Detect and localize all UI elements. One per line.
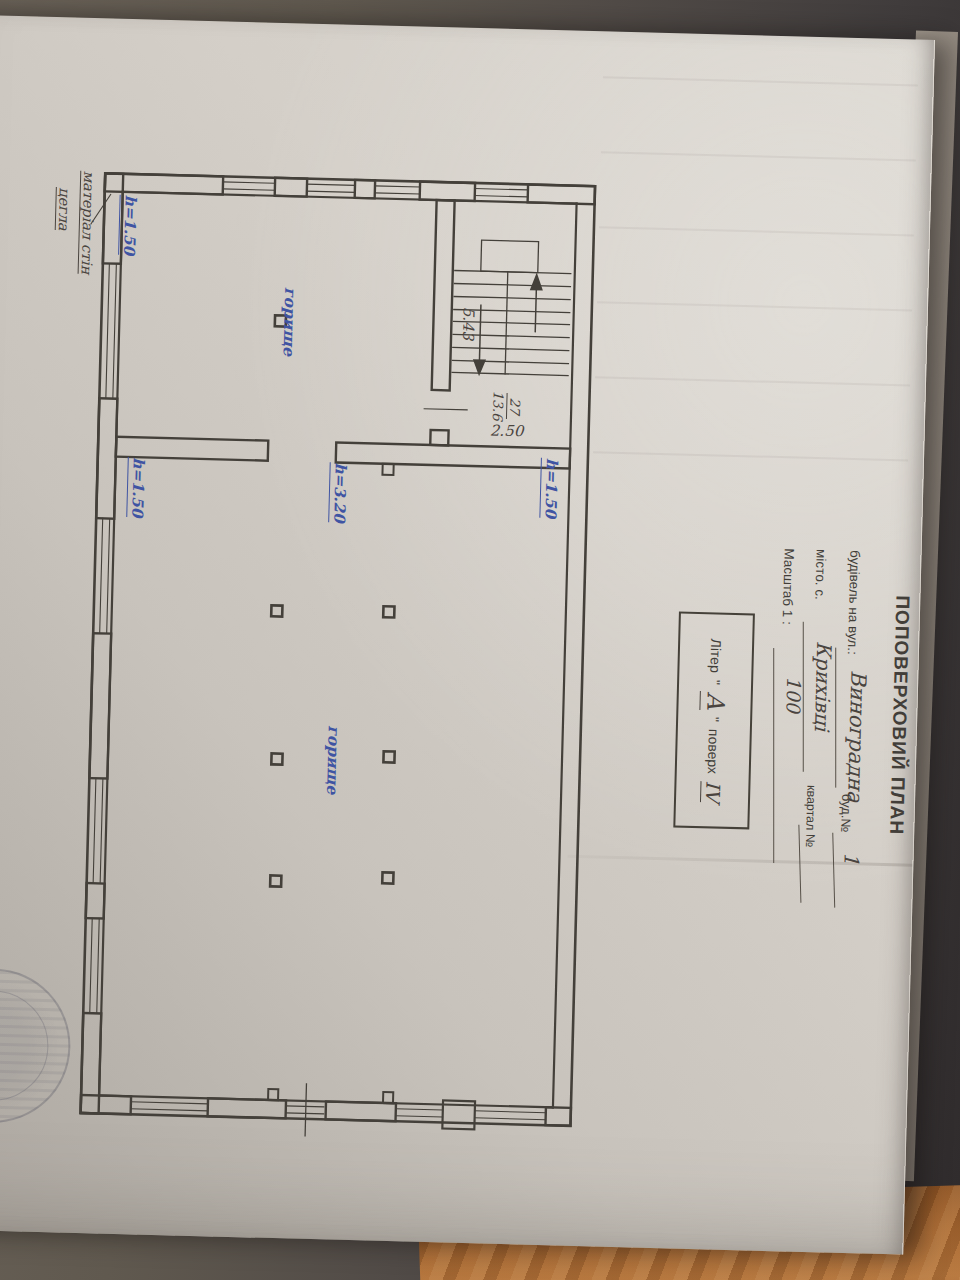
quarter-field-label: квартал № xyxy=(803,785,819,848)
city-field-label: місто. с. xyxy=(812,549,828,600)
height-label-top: h=1.50 xyxy=(539,458,561,519)
liter-floor-box: Літер " А " поверх IV xyxy=(673,611,755,829)
street-field-value: Виноградна xyxy=(843,670,870,803)
scale-field-label: Масштаб 1 : xyxy=(780,548,797,625)
street-field-label: будівель на вул.: xyxy=(845,550,863,655)
liter-label: Літер xyxy=(707,638,724,673)
attic-label-left-room: горище xyxy=(280,287,301,356)
wall-details xyxy=(267,1083,475,1140)
floor-label: поверх xyxy=(705,729,722,774)
stair-length-dimension: 5.43 xyxy=(459,307,478,341)
city-field-value: Крихівці xyxy=(810,641,836,731)
form-line xyxy=(773,648,774,863)
floor-plan-sheet: ПОПОВЕРХОВИЙ ПЛАН будівель на вул.: Вино… xyxy=(0,13,935,1255)
window-glazing-lines xyxy=(87,179,570,1120)
show-through-line xyxy=(595,376,910,386)
height-label-ridge: h=3.20 xyxy=(328,462,350,523)
show-through-line xyxy=(603,76,918,86)
post-markers xyxy=(260,315,408,889)
material-note-line1: матеріал стін xyxy=(78,171,98,275)
attic-label-main-room: горище xyxy=(323,725,344,794)
form-line xyxy=(832,833,835,908)
photo-of-floor-plan-document: ПОПОВЕРХОВИЙ ПЛАН будівель на вул.: Вино… xyxy=(0,0,960,1280)
show-through-line xyxy=(593,451,908,461)
liter-close-quote: " xyxy=(706,717,722,722)
wall-piers xyxy=(81,173,595,1126)
building-no-label: буд.№ xyxy=(838,794,854,833)
show-through-line xyxy=(597,301,912,311)
stair-width-dimension: 2.50 xyxy=(490,421,524,440)
liter-value: А xyxy=(699,691,729,710)
material-note-line2: цегла xyxy=(55,187,73,231)
liter-open-quote: " xyxy=(707,680,723,685)
page-title: ПОПОВЕРХОВИЙ ПЛАН xyxy=(885,595,913,835)
inner-wall-faces xyxy=(99,192,577,1108)
floor-value: IV xyxy=(700,781,725,803)
scale-field-value: 100 xyxy=(782,676,805,713)
floor-plan-drawing xyxy=(0,143,611,1161)
show-through-line xyxy=(601,151,916,161)
building-no-value: 1 xyxy=(839,852,863,865)
height-label-bottom-mid: h=1.50 xyxy=(126,457,148,518)
show-through-line xyxy=(599,226,914,236)
height-label-bottom-left: h=1.50 xyxy=(118,195,140,256)
stair-width-dimension-rotated: 2.50 xyxy=(476,413,537,449)
outer-walls xyxy=(81,173,595,1126)
